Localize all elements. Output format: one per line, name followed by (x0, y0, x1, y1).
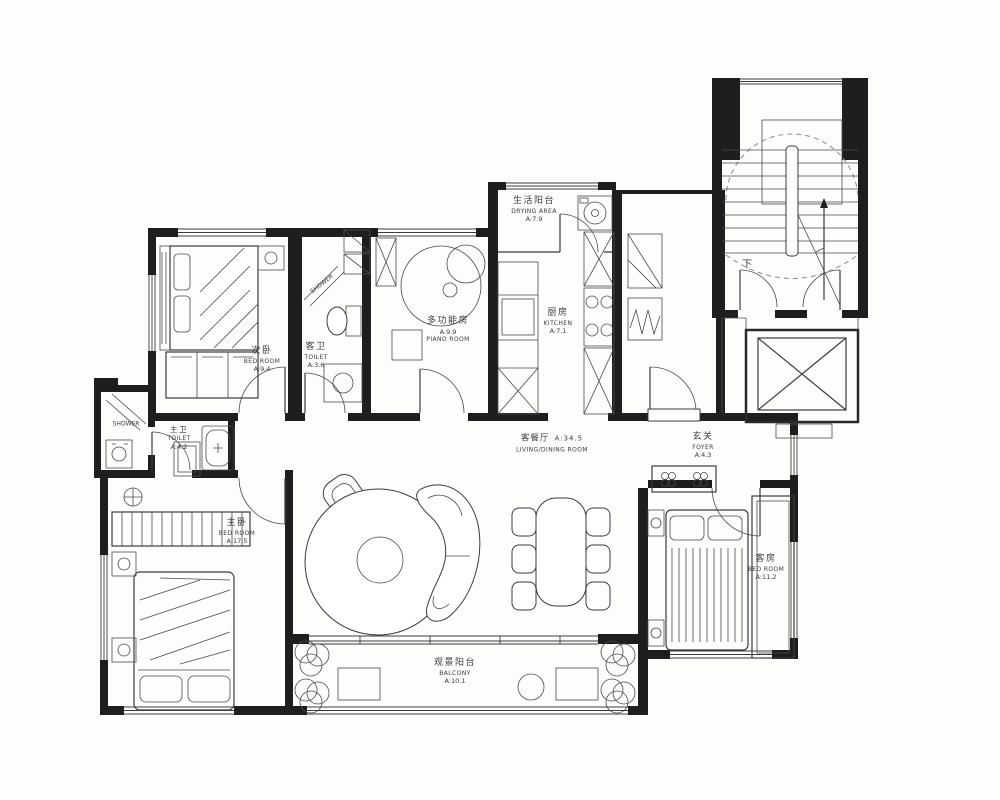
dining-set (512, 498, 610, 610)
guest-bathroom-fixtures (304, 230, 370, 402)
bed-second-bedroom (160, 246, 258, 350)
windows (100, 78, 842, 715)
utility-fixtures (628, 234, 662, 340)
ceiling-fan-icon (124, 488, 142, 506)
bed-guest-bedroom (648, 510, 748, 650)
sofa-set (305, 469, 480, 635)
label-balcony: 观景阳台 BALCONY A:10.1 (434, 658, 476, 686)
floor-plan-linework (0, 0, 1000, 800)
label-living-dining: 客餐厅 A:34.5 LIVING/DINING ROOM (516, 426, 588, 455)
label-kitchen: 厨房 KITCHEN A:7.1 (544, 308, 573, 336)
label-drying-area: 生活阳台 DRYING AREA A:7.9 (511, 196, 556, 224)
bed-master (112, 552, 234, 710)
label-shower-master: SHOWER (113, 421, 140, 428)
washing-machine (578, 196, 612, 230)
label-guest-toilet: 客卫 TOILET A:3.6 (304, 342, 327, 370)
label-master-bedroom: 主卧 BED ROOM A:17.5 (219, 518, 255, 546)
shoe-cabinet (652, 466, 716, 492)
label-piano-room: 多功能房 A:9.9 PIANO ROOM (426, 316, 469, 344)
nightstand (258, 246, 284, 270)
shower-room-fixtures (106, 394, 146, 468)
staircase (722, 120, 858, 305)
label-stair-down: 下 (742, 256, 752, 271)
label-master-toilet: 主卫 TOILET A:4.2 (167, 425, 190, 451)
label-second-bedroom: 次卧 BED ROOM A:9.4 (244, 346, 280, 374)
label-foyer: 玄关 FOYER A:4.3 (692, 432, 713, 460)
floor-plan: 次卧 BED ROOM A:9.4 客卫 TOILET A:3.6 多功能房 A… (0, 0, 1000, 800)
label-guest-bedroom: 客房 BED ROOM A:11.2 (748, 554, 784, 582)
